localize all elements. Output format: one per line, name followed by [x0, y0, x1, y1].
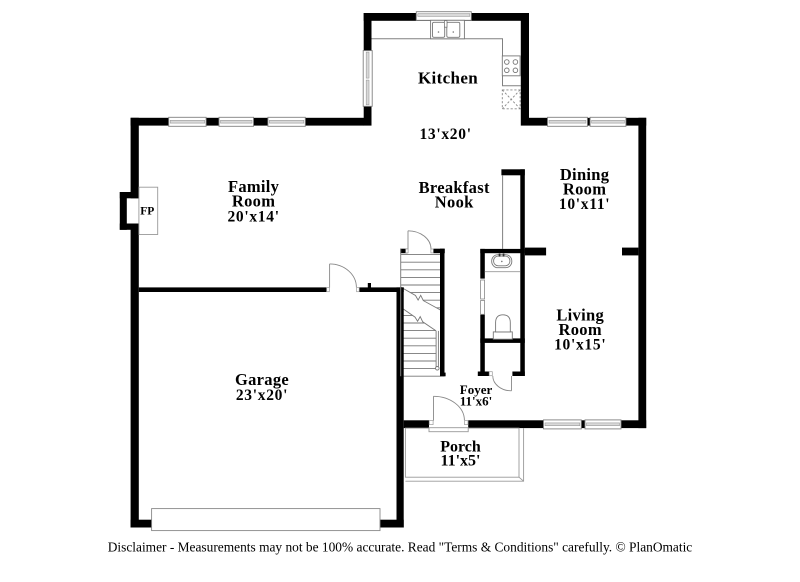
svg-text:13'x20': 13'x20' — [419, 126, 471, 143]
svg-text:FP: FP — [140, 206, 154, 218]
svg-text:23'x20': 23'x20' — [236, 387, 288, 404]
svg-text:20'x14': 20'x14' — [227, 208, 279, 225]
svg-text:10'x15': 10'x15' — [554, 337, 606, 354]
svg-text:10'x11': 10'x11' — [559, 196, 610, 213]
svg-text:Kitchen: Kitchen — [418, 68, 478, 87]
svg-text:11'x6': 11'x6' — [460, 394, 493, 409]
svg-text:Disclaimer - Measurements may: Disclaimer - Measurements may not be 100… — [108, 539, 693, 554]
svg-text:Nook: Nook — [435, 192, 474, 211]
svg-text:11'x5': 11'x5' — [440, 453, 480, 470]
